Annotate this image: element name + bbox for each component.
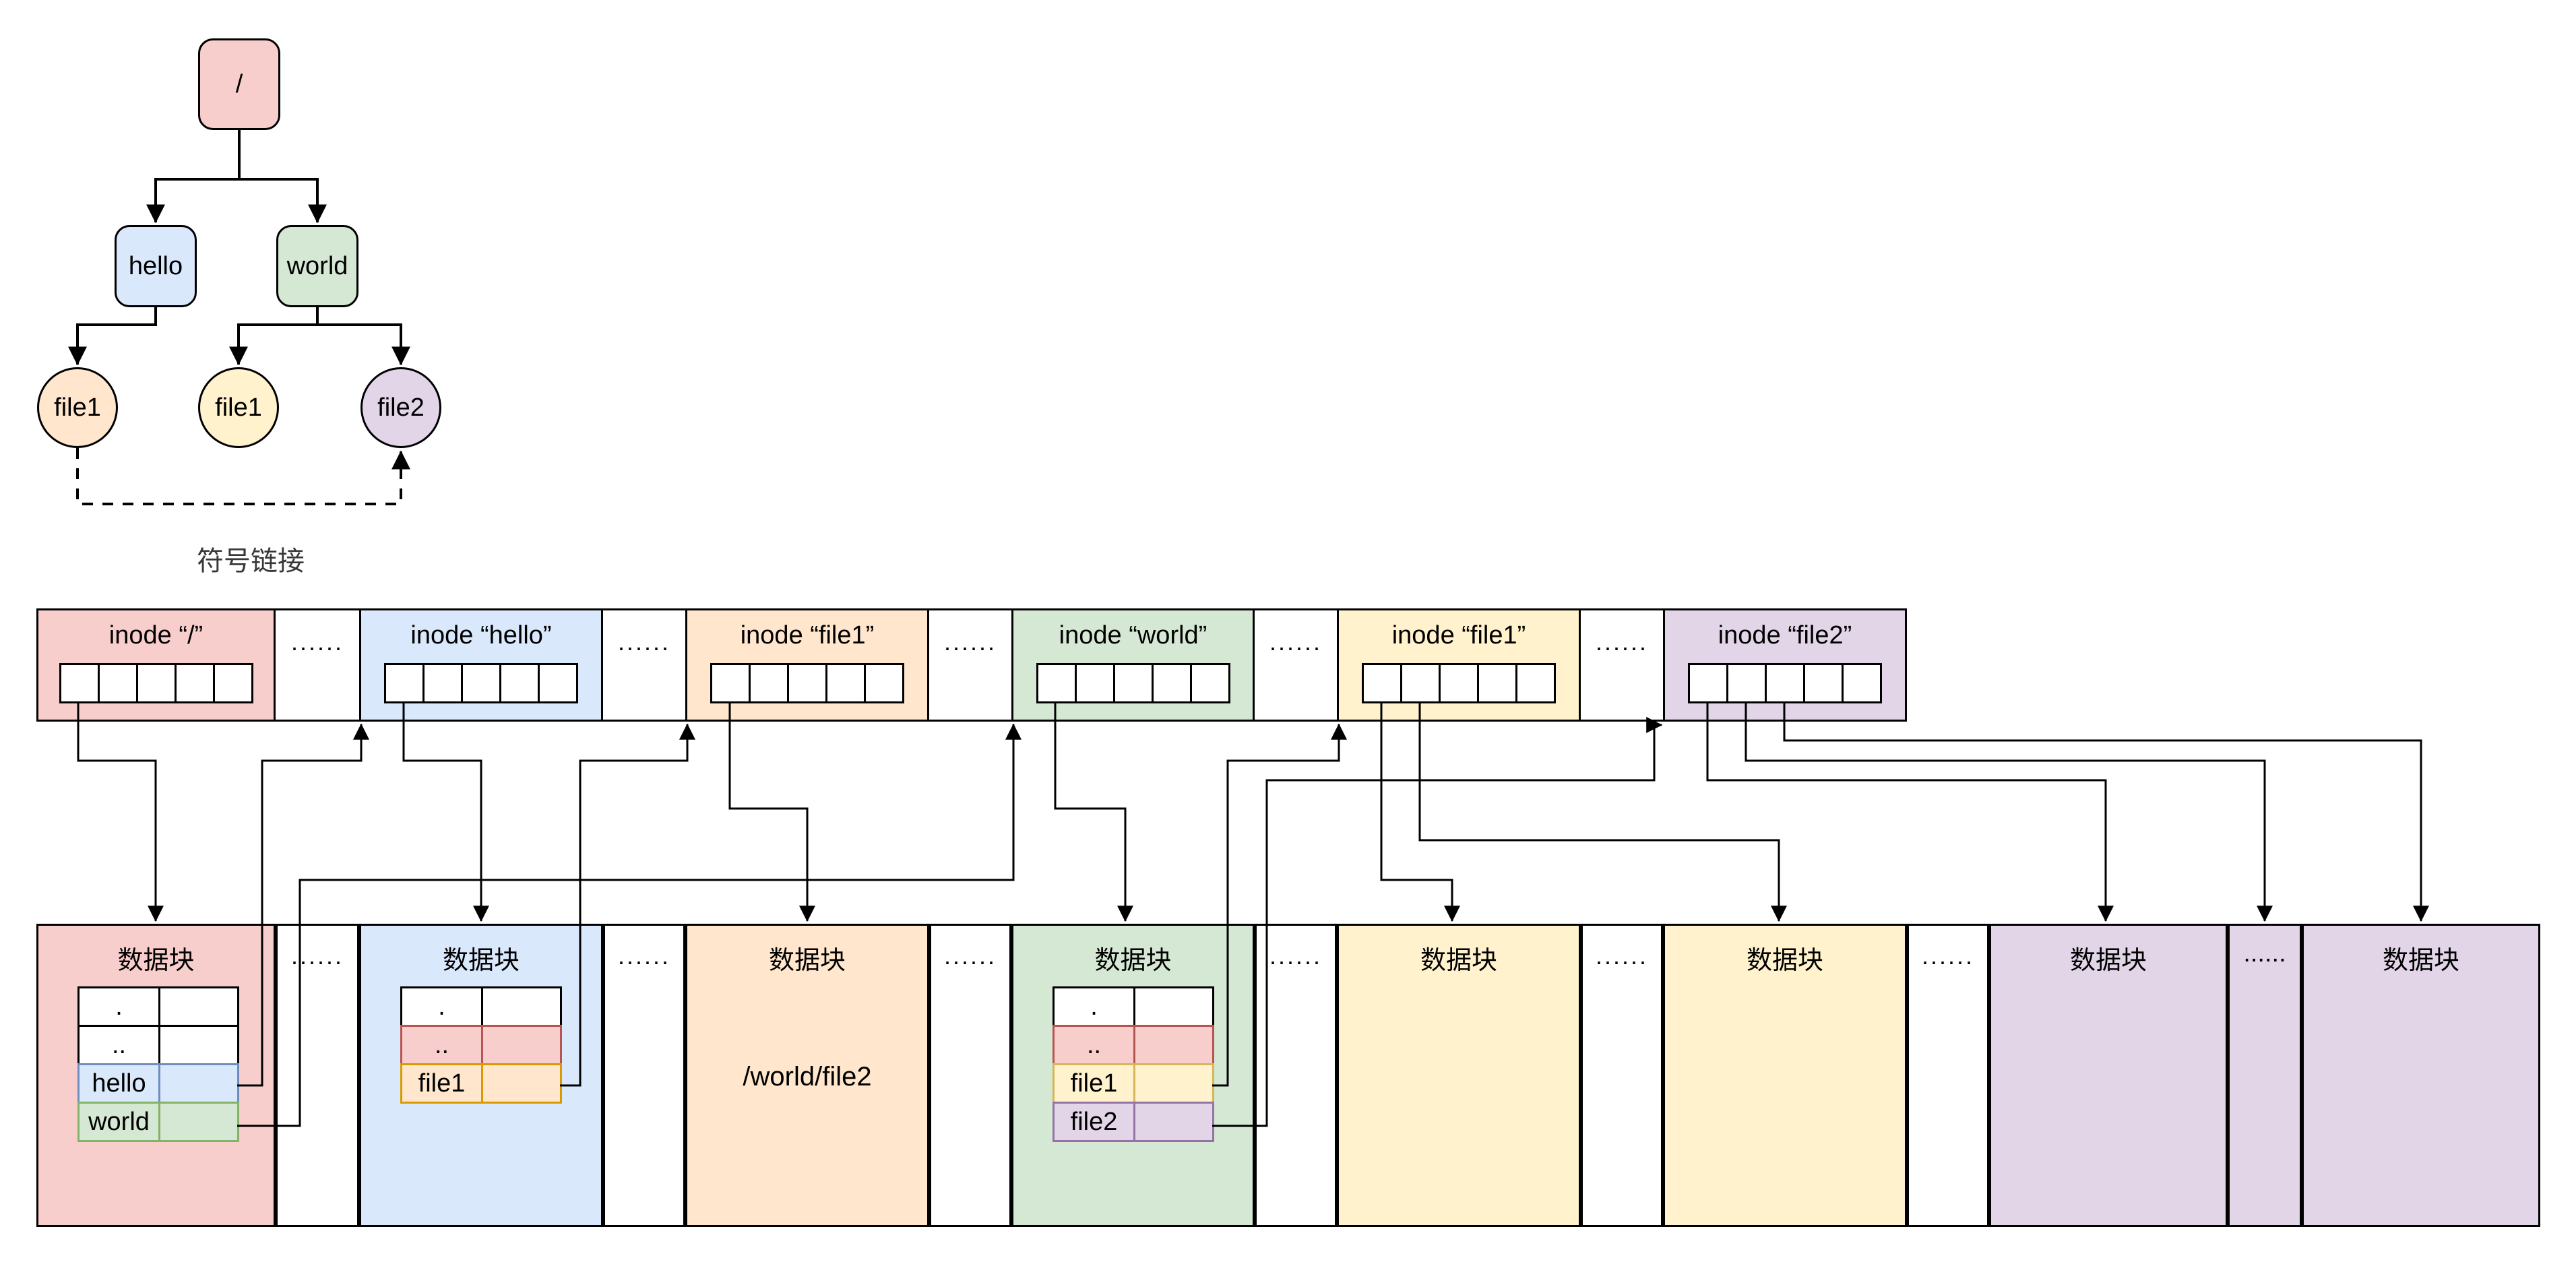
inode-gap: ...... (603, 608, 685, 722)
tree-edge-world-file1 (239, 307, 317, 365)
inode-pointer-slot (499, 663, 540, 703)
dir-entry-ref-cell (1135, 1104, 1212, 1140)
arrow-inode-hello-to-block (404, 701, 481, 921)
dir-entry-ref-cell (160, 1104, 237, 1140)
dir-entry-file2: file2 (1053, 1102, 1214, 1142)
tree-node-file2: file2 (360, 367, 441, 448)
ellipsis: ...... (1255, 628, 1337, 656)
inode-pointer-slot (1036, 663, 1077, 703)
ellipsis: ...... (1909, 942, 1987, 970)
data-block-file2-b: 数据块 (2302, 924, 2540, 1227)
data-block-file1-b: 数据块 (1663, 924, 1907, 1227)
inode-pointer-slot (787, 663, 827, 703)
arrow-inode-file1-hello-to-block (730, 701, 807, 921)
dir-entry-dotdot: .. (400, 1025, 562, 1065)
data-block-file1-a: 数据块 (1337, 924, 1581, 1227)
directory-table: . .. hello world (77, 986, 239, 1142)
data-gap: ...... (1581, 924, 1663, 1227)
ellipsis: ...... (2230, 939, 2300, 968)
data-gap: ...... (1907, 924, 1989, 1227)
inode-pointer-slot (1439, 663, 1479, 703)
dir-entry-dot: . (400, 986, 562, 1027)
inode-title: inode “/” (38, 621, 274, 650)
inode-pointer-slot (1515, 663, 1556, 703)
inode-pointer-slot (1190, 663, 1230, 703)
inode-pointer-slot (59, 663, 100, 703)
arrow-inode-file1-world-s1-to-block (1381, 701, 1452, 921)
inode-pointer-slot (1765, 663, 1805, 703)
dir-entry-ref-cell (483, 988, 560, 1025)
inode-box-file1-world: inode “file1” (1337, 608, 1581, 722)
data-block-file2-mid: ...... (2228, 924, 2302, 1227)
tree-node-root-label: / (236, 70, 243, 99)
ellipsis: ...... (1581, 628, 1663, 656)
inode-box-file1-hello: inode “file1” (685, 608, 929, 722)
tree-node-world-label: world (287, 252, 348, 281)
inode-pointer-slot (538, 663, 578, 703)
tree-node-root: / (198, 38, 280, 130)
tree-edge-hello-file1 (77, 307, 156, 365)
inode-pointer-slot (1152, 663, 1192, 703)
inode-title: inode “world” (1013, 621, 1253, 650)
directory-table: . .. file1 (400, 986, 562, 1104)
inode-box-file2: inode “file2” (1663, 608, 1907, 722)
inode-pointer-slot (136, 663, 177, 703)
symlink-label: 符号链接 (170, 539, 332, 578)
directory-table: . .. file1 file2 (1053, 986, 1214, 1142)
tree-node-file1-hello: file1 (37, 367, 118, 448)
tree-node-hello-label: hello (129, 252, 183, 281)
ellipsis: ...... (929, 628, 1011, 656)
inode-pointer-slot (1803, 663, 1844, 703)
dir-entry-ref-cell (483, 1027, 560, 1063)
dir-entry-ref-cell (160, 1065, 237, 1102)
data-gap: ...... (1255, 924, 1337, 1227)
inode-pointer-slots (1362, 663, 1556, 703)
inode-box-hello: inode “hello” (359, 608, 603, 722)
dir-entry-ref-cell (1135, 1027, 1212, 1063)
data-block-title: 数据块 (1339, 939, 1579, 976)
dir-entry-file1: file1 (400, 1063, 562, 1104)
dir-entry-ref-cell (1135, 1065, 1212, 1102)
inode-pointer-slots (1688, 663, 1882, 703)
data-block-title: 数据块 (38, 939, 274, 976)
data-block-root: 数据块 . .. hello world (36, 924, 276, 1227)
inode-pointer-slot (1477, 663, 1517, 703)
tree-edge-root-hello (156, 130, 239, 222)
inode-pointer-slot (1362, 663, 1402, 703)
inode-pointer-slot (1842, 663, 1882, 703)
dir-entry-ref-cell (1135, 988, 1212, 1025)
dir-entry-ref-cell (483, 1065, 560, 1102)
arrow-inode-file2-s3-to-block (1784, 701, 2421, 921)
inode-pointer-slot (1688, 663, 1728, 703)
inode-title: inode “hello” (361, 621, 601, 650)
filesystem-inode-diagram: / hello world file1 file1 file2 符号链接 ino… (0, 0, 2576, 1264)
inode-pointer-slots (710, 663, 904, 703)
tree-node-hello: hello (115, 225, 197, 307)
ellipsis: ...... (605, 942, 683, 970)
tree-node-file1-world-label: file1 (215, 393, 262, 422)
arrow-inode-file2-s2-to-block (1746, 701, 2265, 921)
inode-pointer-slot (384, 663, 425, 703)
ellipsis: ...... (276, 628, 359, 656)
arrow-inode-world-to-block (1055, 701, 1125, 921)
dir-entry-dot: . (77, 986, 239, 1027)
inode-pointer-slot (1075, 663, 1115, 703)
data-gap: ...... (603, 924, 685, 1227)
inode-pointer-slot (422, 663, 463, 703)
ellipsis: ...... (931, 942, 1009, 970)
data-block-title: 数据块 (687, 939, 927, 976)
ellipsis: ...... (1257, 942, 1335, 970)
inode-title: inode “file1” (687, 621, 927, 650)
dir-entry-hello: hello (77, 1063, 239, 1104)
inode-pointer-slot (825, 663, 866, 703)
inode-gap: ...... (276, 608, 359, 722)
dir-entry-dotdot: .. (77, 1025, 239, 1065)
data-gap: ...... (929, 924, 1011, 1227)
dir-entry-ref-cell (160, 1027, 237, 1063)
dir-entry-file1: file1 (1053, 1063, 1214, 1104)
inode-box-world: inode “world” (1011, 608, 1255, 722)
data-block-hello: 数据块 . .. file1 (359, 924, 603, 1227)
data-block-file1-symlink: 数据块 /world/file2 (685, 924, 929, 1227)
inode-pointer-slot (213, 663, 253, 703)
data-block-world: 数据块 . .. file1 file2 (1011, 924, 1255, 1227)
inode-pointer-slot (175, 663, 215, 703)
inode-pointer-slot (1726, 663, 1767, 703)
symlink-arrow (77, 448, 401, 504)
data-gap: ...... (276, 924, 359, 1227)
data-block-title: 数据块 (1665, 939, 1905, 976)
symlink-target-path: /world/file2 (687, 1062, 927, 1092)
tree-node-file1-world: file1 (198, 367, 279, 448)
ellipsis: ...... (1583, 942, 1661, 970)
inode-gap: ...... (929, 608, 1011, 722)
inode-box-root: inode “/” (36, 608, 276, 722)
tree-node-file2-label: file2 (377, 393, 425, 422)
data-block-title: 数据块 (361, 939, 601, 976)
inode-pointer-slots (1036, 663, 1230, 703)
dir-entry-dot: . (1053, 986, 1214, 1027)
arrow-inode-file2-s1-to-block (1707, 701, 2106, 921)
inode-title: inode “file1” (1339, 621, 1579, 650)
arrow-inode-root-to-block (78, 701, 156, 921)
dir-entry-ref-cell (160, 988, 237, 1025)
inode-pointer-slot (98, 663, 138, 703)
inode-pointer-slot (1113, 663, 1154, 703)
data-block-file2-a: 数据块 (1989, 924, 2228, 1227)
inode-pointer-slot (710, 663, 751, 703)
data-block-title: 数据块 (1013, 939, 1253, 976)
dir-entry-world: world (77, 1102, 239, 1142)
inode-pointer-slots (59, 663, 253, 703)
inode-pointer-slots (384, 663, 578, 703)
inode-pointer-slot (461, 663, 501, 703)
tree-node-world: world (276, 225, 358, 307)
data-block-title: 数据块 (2304, 939, 2538, 976)
dir-entry-dotdot: .. (1053, 1025, 1214, 1065)
inode-pointer-slot (749, 663, 789, 703)
inode-title: inode “file2” (1665, 621, 1905, 650)
tree-edge-world-file2 (317, 307, 401, 365)
tree-edge-root-world (239, 130, 317, 222)
inode-pointer-slot (864, 663, 904, 703)
tree-node-file1-hello-label: file1 (54, 393, 101, 422)
inode-pointer-slot (1400, 663, 1441, 703)
ellipsis: ...... (278, 942, 357, 970)
ellipsis: ...... (603, 628, 685, 656)
inode-gap: ...... (1581, 608, 1663, 722)
inode-gap: ...... (1255, 608, 1337, 722)
arrow-inode-file1-world-s2-to-block (1420, 701, 1779, 921)
data-block-title: 数据块 (1991, 939, 2226, 976)
